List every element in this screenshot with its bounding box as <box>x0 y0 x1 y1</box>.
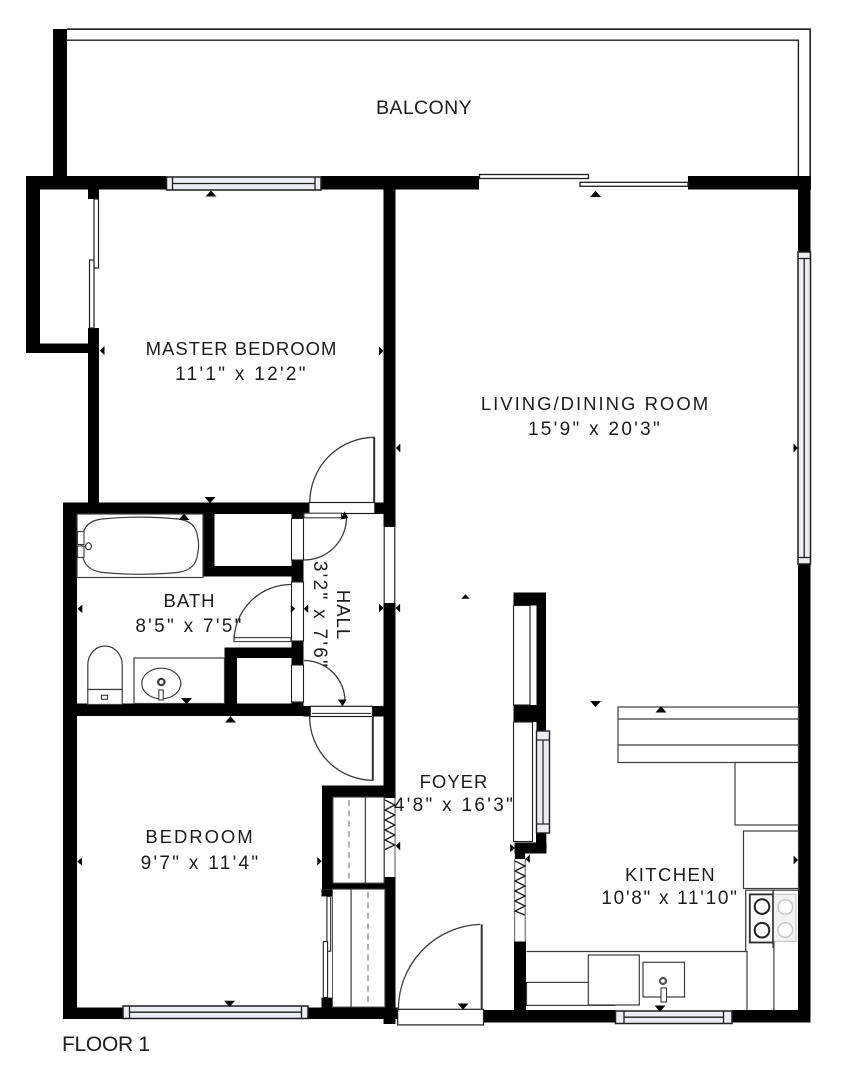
svg-text:BEDROOM: BEDROOM <box>145 826 254 847</box>
svg-text:9'7" x 11'4": 9'7" x 11'4" <box>141 853 261 874</box>
svg-text:15'9" x 20'3": 15'9" x 20'3" <box>528 419 662 440</box>
svg-text:MASTER BEDROOM: MASTER BEDROOM <box>146 338 338 359</box>
svg-text:KITCHEN: KITCHEN <box>625 864 716 885</box>
svg-text:FLOOR 1: FLOOR 1 <box>62 1033 150 1056</box>
svg-text:BATH: BATH <box>164 590 216 611</box>
svg-text:10'8" x 11'10": 10'8" x 11'10" <box>601 888 738 909</box>
svg-text:11'1" x 12'2": 11'1" x 12'2" <box>175 364 308 385</box>
svg-text:BALCONY: BALCONY <box>376 97 472 119</box>
svg-text:4'8" x 16'3": 4'8" x 16'3" <box>394 795 515 816</box>
svg-text:HALL: HALL <box>333 590 354 640</box>
svg-text:3'2" x 7'6": 3'2" x 7'6" <box>309 561 330 669</box>
svg-text:LIVING/DINING ROOM: LIVING/DINING ROOM <box>481 393 710 414</box>
svg-text:8'5" x 7'5": 8'5" x 7'5" <box>135 616 243 637</box>
svg-text:FOYER: FOYER <box>420 771 489 792</box>
